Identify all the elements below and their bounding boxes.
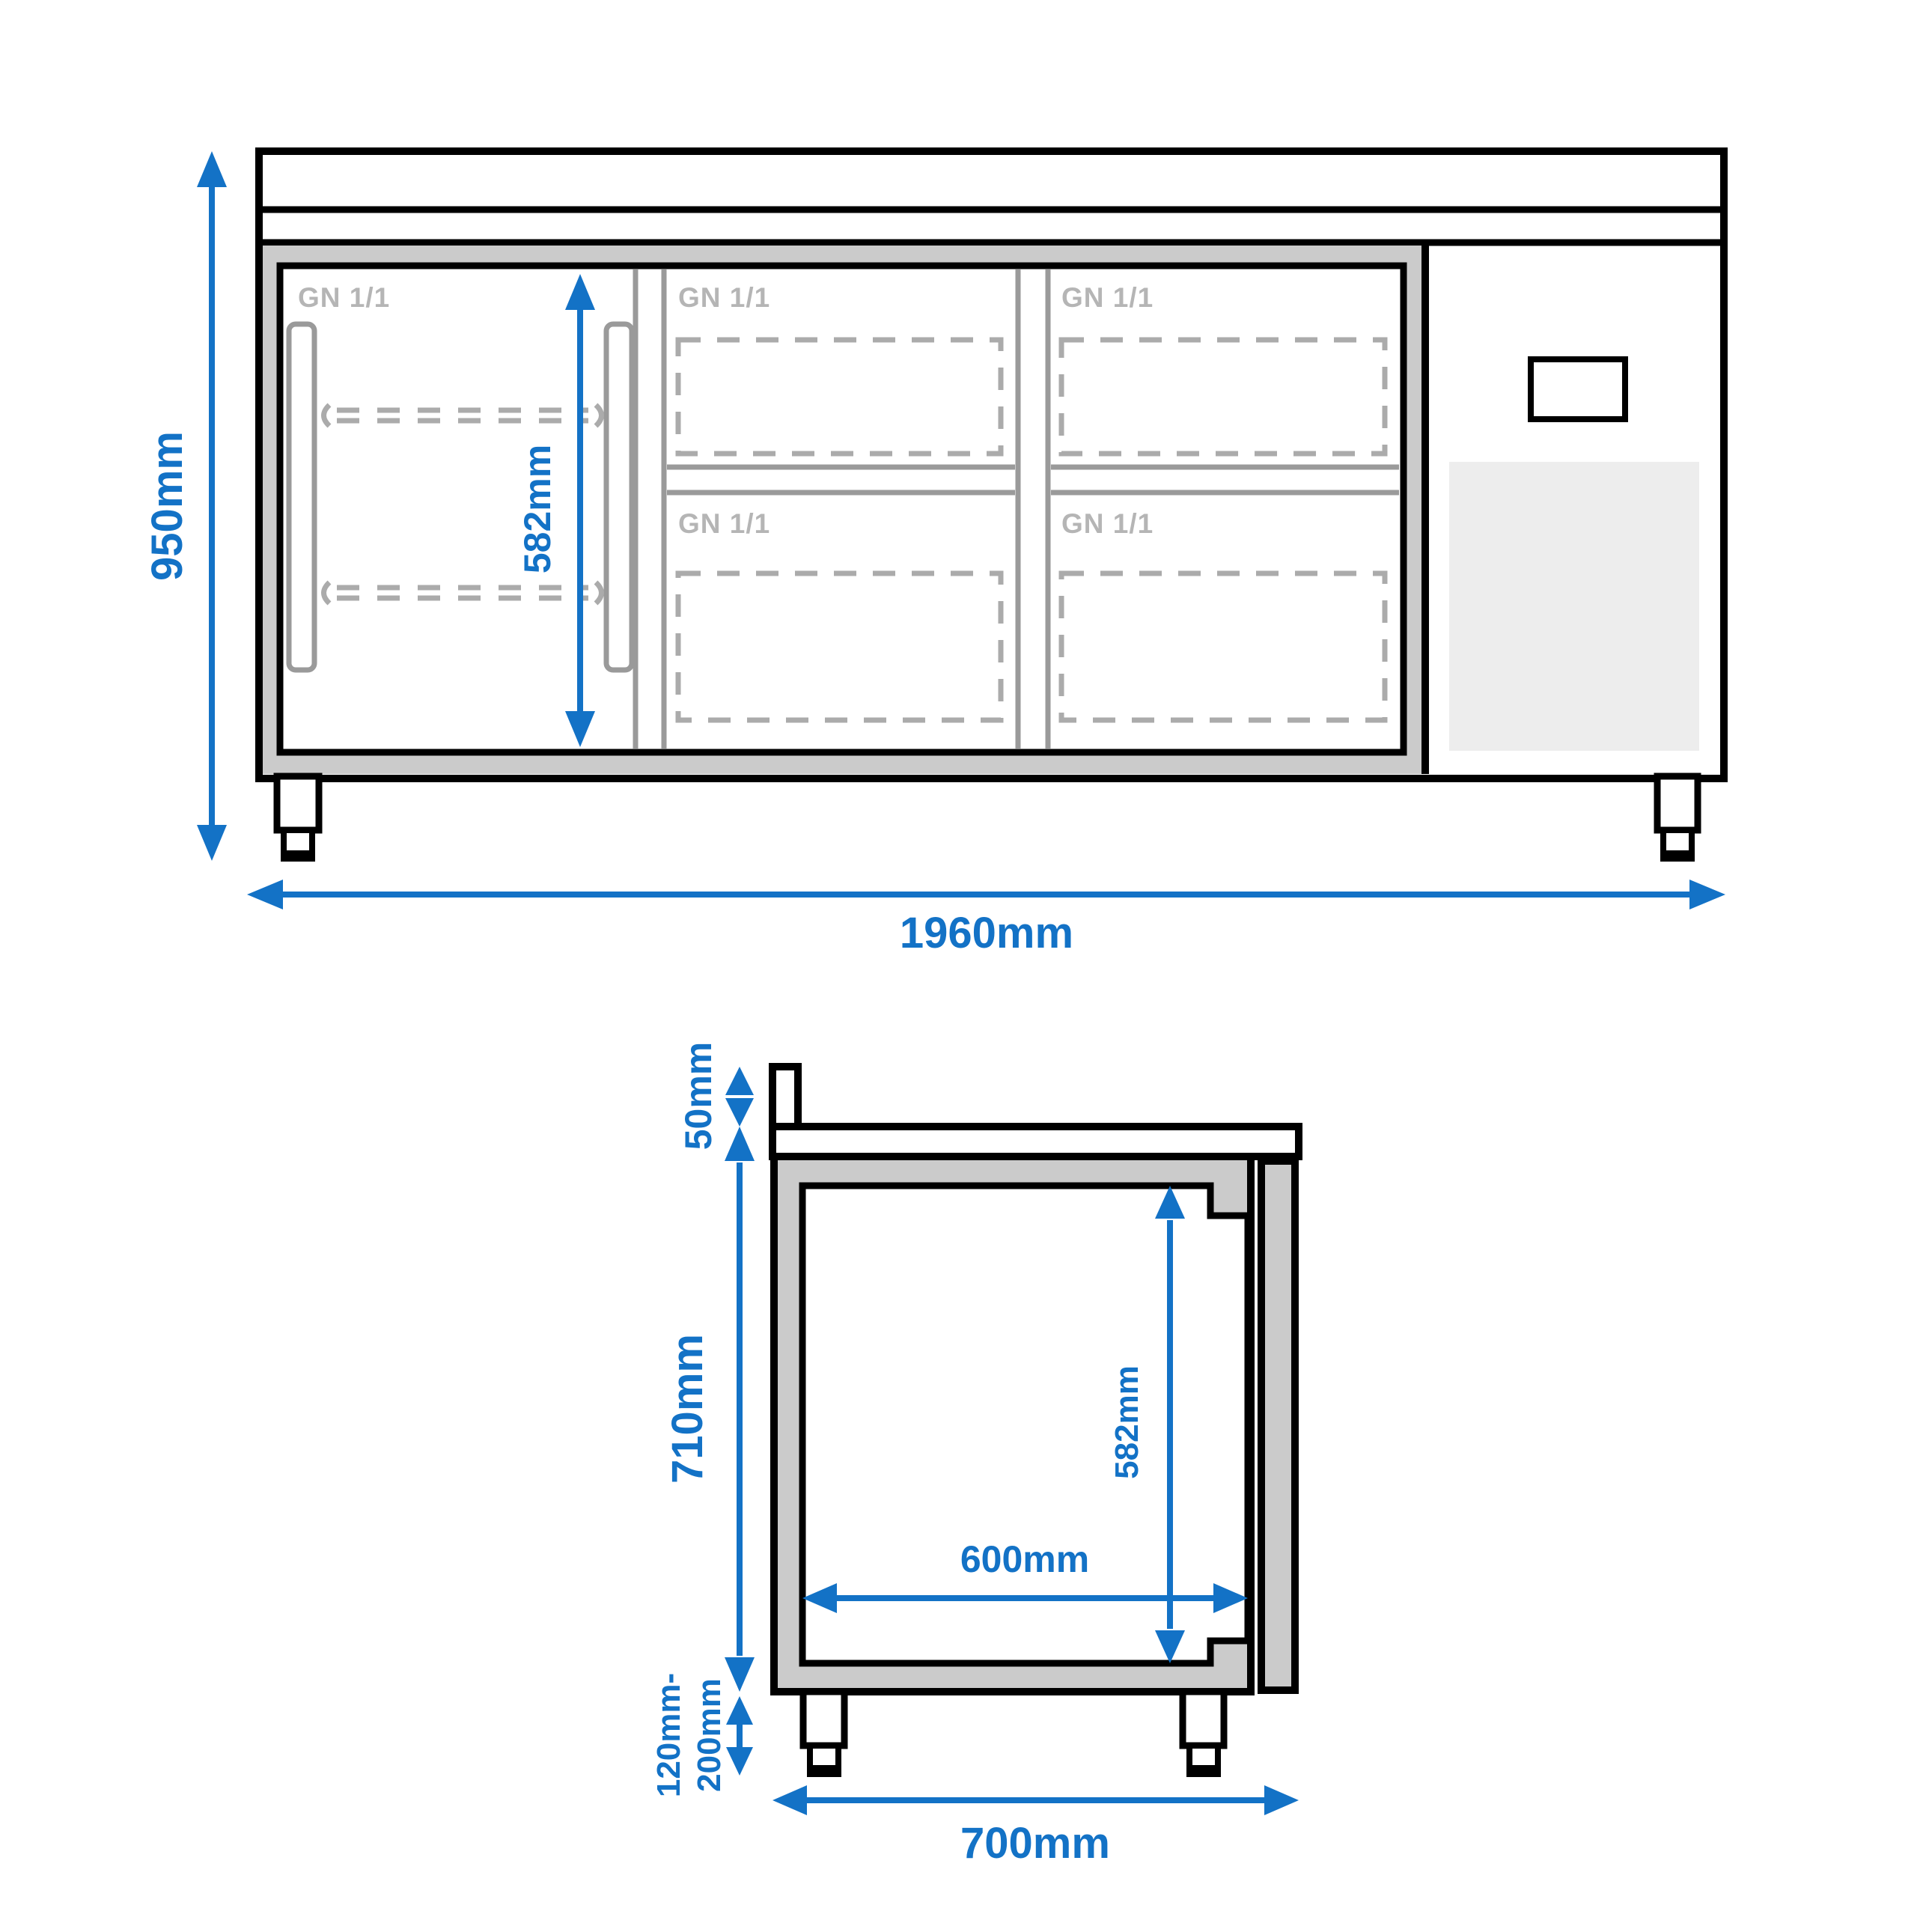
- control-panel: [1531, 359, 1625, 419]
- vent-panel: [1449, 462, 1699, 751]
- leg: [277, 776, 319, 830]
- interior-cavity: [802, 1186, 1248, 1663]
- side-feet: [803, 1692, 1224, 1776]
- dimension-label-leg-height-min: 120mm-: [650, 1673, 687, 1797]
- leg: [1657, 776, 1698, 830]
- leg: [1183, 1692, 1224, 1746]
- dimension-label-leg-height-max: 200mm: [691, 1678, 728, 1792]
- dimension-overall-width: 1960mm: [247, 880, 1725, 957]
- dimension-leg-height: 120mm- 200mm: [650, 1673, 753, 1797]
- gn-label-door: GN 1/1: [298, 282, 390, 313]
- technical-drawing-page: GN 1/1 GN 1/1 GN 1/1 GN 1/1 GN 1/1: [0, 0, 1932, 1932]
- dimension-overall-depth: 700mm: [773, 1785, 1299, 1868]
- leg-base: [1188, 1765, 1219, 1776]
- dimension-label-overall-width: 1960mm: [900, 909, 1073, 957]
- machine-partition: [1421, 244, 1429, 774]
- dimension-label-overall-height: 950mm: [143, 431, 192, 581]
- dimension-label-overall-depth: 700mm: [960, 1819, 1110, 1868]
- leg: [803, 1692, 844, 1746]
- dimension-label-body-height: 710mm: [663, 1334, 712, 1484]
- gn-label-drawer: GN 1/1: [1061, 508, 1154, 539]
- door-rail-right: [606, 324, 632, 670]
- gn-label-drawer: GN 1/1: [1061, 282, 1154, 313]
- side-view: 50mm 710mm 120mm- 200mm 582mm: [650, 1042, 1299, 1868]
- front-view: GN 1/1 GN 1/1 GN 1/1 GN 1/1 GN 1/1: [143, 151, 1725, 957]
- dimension-label-interior-depth: 600mm: [960, 1538, 1089, 1580]
- dimension-body-height: 710mm: [663, 1127, 755, 1692]
- leg-base: [1662, 850, 1693, 861]
- gn-label-drawer: GN 1/1: [678, 508, 770, 539]
- backsplash: [773, 1067, 798, 1130]
- door-rail-left: [289, 324, 314, 670]
- dimension-label-front-interior-height: 582mm: [516, 445, 558, 573]
- gn-label-drawer: GN 1/1: [678, 282, 770, 313]
- dimension-overall-height: 950mm: [143, 151, 227, 861]
- front-feet: [277, 776, 1698, 861]
- dimension-label-backsplash-height: 50mm: [677, 1042, 719, 1151]
- dimension-label-side-interior-height: 582mm: [1109, 1365, 1145, 1479]
- leg-base: [808, 1765, 840, 1776]
- leg-base: [282, 850, 314, 861]
- worktop: [773, 1127, 1299, 1157]
- door-panel: [1261, 1161, 1295, 1690]
